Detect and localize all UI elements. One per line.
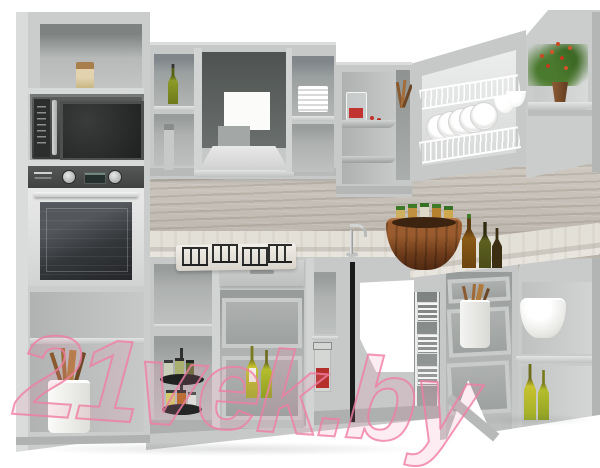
kitchen-product-photo: 21vek.by	[0, 0, 600, 468]
oven-glass-inner-rim	[46, 208, 128, 272]
wall-cubby	[292, 124, 334, 172]
wooden-bowl-interior	[392, 217, 456, 228]
oven-knob	[62, 170, 76, 184]
hob-grate	[242, 247, 268, 266]
shelf-board	[154, 106, 194, 111]
shelf-board	[292, 116, 334, 121]
wall-cubby	[154, 114, 194, 166]
cabinet-stile	[194, 48, 202, 172]
drawer-handle	[250, 270, 274, 274]
hob-grate	[182, 247, 208, 266]
strawberry-jug-content	[349, 108, 363, 118]
shelf-shadow	[528, 110, 592, 116]
hood-back-opening	[224, 92, 270, 130]
corner-shelf-board	[528, 102, 592, 110]
curved-shelf-board	[342, 156, 396, 163]
open-shelf	[154, 264, 212, 324]
microwave-window	[60, 101, 144, 161]
oven-panel-text	[34, 172, 52, 174]
oven-knob	[108, 170, 122, 184]
plate-stack	[298, 86, 328, 112]
spray-bottle	[164, 124, 174, 170]
right-end-side-panel	[592, 12, 600, 172]
watermark: 21vek.by	[13, 316, 478, 464]
plant-berry	[540, 54, 544, 58]
curved-shelf-board	[342, 120, 396, 128]
corner-wall-bottom-rail	[336, 186, 412, 194]
hob-grate	[268, 244, 292, 263]
hob-grate	[212, 244, 238, 263]
cooker-hood-lip	[194, 170, 294, 177]
microwave-buttons	[37, 106, 46, 148]
wire-basket-tier	[417, 302, 439, 322]
plant-foliage	[528, 44, 588, 86]
hood-duct	[218, 126, 250, 148]
oven-handle	[34, 192, 138, 197]
cooker-hood	[198, 146, 290, 172]
corner-shelf-board	[516, 356, 592, 363]
oven-display	[84, 172, 106, 184]
storage-jar	[76, 62, 94, 88]
open-shelf	[314, 272, 336, 334]
microwave-handle	[52, 100, 57, 155]
plate	[470, 102, 498, 130]
corner-wall-cavity	[342, 72, 394, 184]
